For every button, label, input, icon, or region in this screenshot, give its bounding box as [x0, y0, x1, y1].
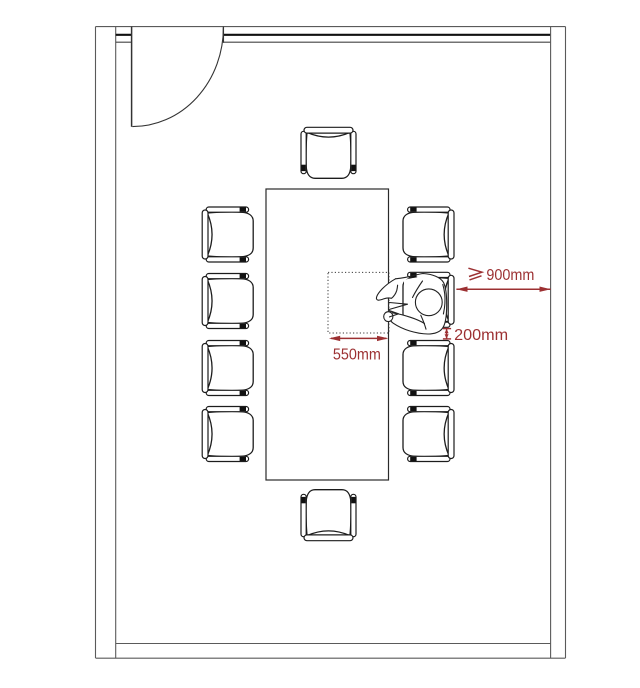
svg-text:200mm: 200mm — [454, 327, 508, 344]
svg-text:550mm: 550mm — [333, 347, 381, 364]
svg-text:900mm: 900mm — [486, 267, 534, 284]
